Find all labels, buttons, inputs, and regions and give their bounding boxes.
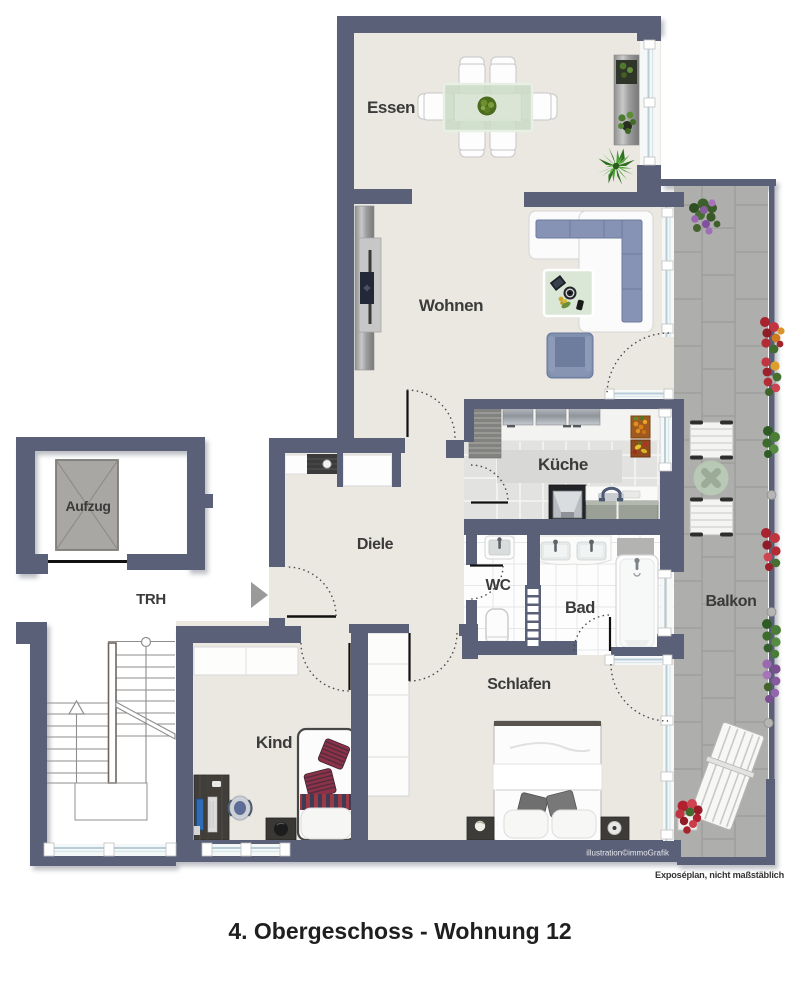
svg-text:Diele: Diele bbox=[357, 536, 394, 553]
svg-text:Schlafen: Schlafen bbox=[487, 676, 551, 693]
svg-text:Küche: Küche bbox=[538, 455, 588, 474]
svg-text:Exposéplan, nicht maßstäblich: Exposéplan, nicht maßstäblich bbox=[655, 870, 785, 880]
svg-text:Wohnen: Wohnen bbox=[419, 296, 483, 315]
svg-text:illustration©immoGrafik: illustration©immoGrafik bbox=[586, 849, 670, 858]
svg-text:Balkon: Balkon bbox=[706, 593, 757, 610]
svg-text:Essen: Essen bbox=[367, 98, 415, 117]
svg-text:Kind: Kind bbox=[256, 733, 292, 752]
svg-text:WC: WC bbox=[485, 577, 510, 594]
svg-text:Bad: Bad bbox=[565, 599, 595, 617]
svg-text:Aufzug: Aufzug bbox=[65, 498, 110, 514]
svg-text:4. Obergeschoss - Wohnung 12: 4. Obergeschoss - Wohnung 12 bbox=[228, 918, 571, 944]
svg-text:TRH: TRH bbox=[136, 591, 166, 608]
